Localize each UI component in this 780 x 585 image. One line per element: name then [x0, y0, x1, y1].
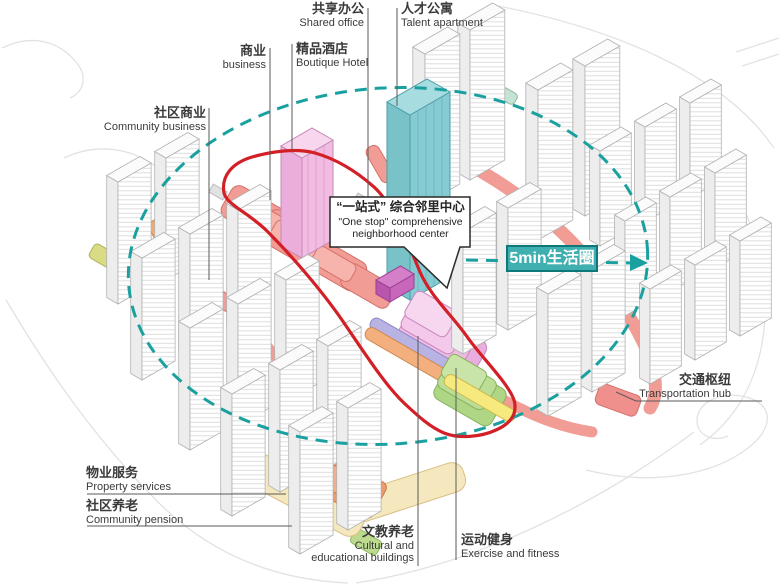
label-business-zh: 商业: [223, 44, 266, 59]
label-shared-office-zh: 共享办公: [299, 2, 364, 17]
label-community-pension-en: Community pension: [86, 514, 183, 527]
label-cultural: 文教养老 Cultural and educational buildings: [311, 525, 414, 565]
label-exercise-zh: 运动健身: [461, 533, 559, 548]
boutique-hotel-building: [281, 128, 333, 258]
masterplan-diagram: 共享办公 Shared office 人才公寓 Talent apartment…: [0, 0, 780, 585]
label-property-services-en: Property services: [86, 481, 171, 494]
label-talent-apartment-en: Talent apartment: [401, 17, 483, 30]
label-transportation-hub-en: Transportation hub: [639, 388, 731, 401]
label-cultural-en2: educational buildings: [311, 552, 414, 565]
label-cultural-en1: Cultural and: [311, 540, 414, 553]
label-exercise-en: Exercise and fitness: [461, 548, 559, 561]
label-property-services: 物业服务 Property services: [86, 466, 171, 493]
callout-text: “一站式” 综合邻里中心 "One stop" comprehensive ne…: [330, 200, 471, 241]
label-boutique-hotel-en: Boutique Hotel: [296, 57, 368, 70]
label-community-pension: 社区养老 Community pension: [86, 499, 183, 526]
label-transportation-hub: 交通枢纽 Transportation hub: [639, 373, 731, 400]
label-property-services-zh: 物业服务: [86, 466, 171, 481]
transportation-hub-building: [594, 382, 643, 418]
label-business-en: business: [223, 59, 266, 72]
label-talent-apartment-zh: 人才公寓: [401, 2, 483, 17]
label-shared-office: 共享办公 Shared office: [299, 2, 364, 29]
five-min-badge: 5min生活圈: [506, 245, 598, 272]
label-business: 商业 business: [223, 44, 266, 71]
label-boutique-hotel: 精品酒店 Boutique Hotel: [296, 42, 368, 69]
label-community-pension-zh: 社区养老: [86, 499, 183, 514]
callout-en2: neighborhood center: [330, 228, 471, 241]
label-community-business-en: Community business: [104, 121, 206, 134]
label-community-business: 社区商业 Community business: [104, 106, 206, 133]
label-exercise: 运动健身 Exercise and fitness: [461, 533, 559, 560]
label-transportation-hub-zh: 交通枢纽: [639, 373, 731, 388]
callout-en1: "One stop" comprehensive: [330, 216, 471, 229]
label-talent-apartment: 人才公寓 Talent apartment: [401, 2, 483, 29]
label-cultural-zh: 文教养老: [311, 525, 414, 540]
label-shared-office-en: Shared office: [299, 17, 364, 30]
label-boutique-hotel-zh: 精品酒店: [296, 42, 368, 57]
label-community-business-zh: 社区商业: [104, 106, 206, 121]
callout-zh: “一站式” 综合邻里中心: [330, 200, 471, 216]
